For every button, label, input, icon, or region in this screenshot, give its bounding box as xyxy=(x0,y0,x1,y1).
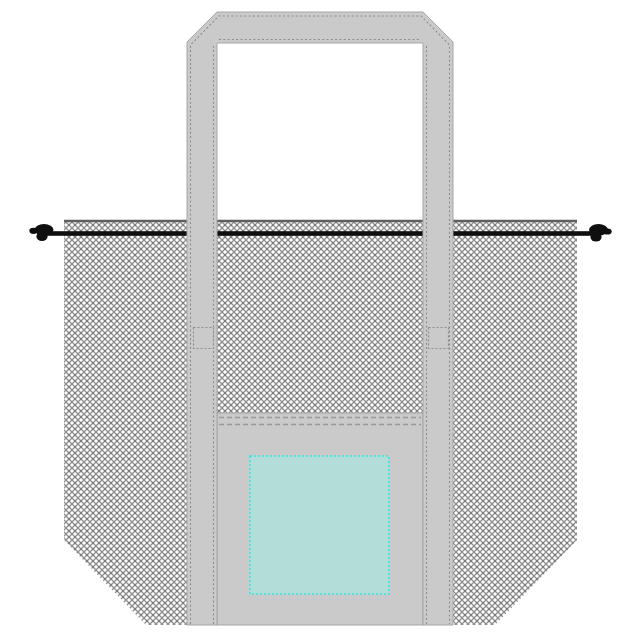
knot-lobe xyxy=(36,232,47,241)
knot-lobe xyxy=(29,228,37,234)
pocket-imprint-area xyxy=(250,456,389,594)
bag-template-drawing xyxy=(0,0,640,640)
strap-tab-left xyxy=(194,328,214,349)
bag-template-canvas xyxy=(0,0,640,640)
drawstring-cord xyxy=(42,231,599,236)
strap-tab-right xyxy=(429,328,449,349)
knot-lobe xyxy=(590,232,601,241)
knot-lobe xyxy=(603,228,611,234)
